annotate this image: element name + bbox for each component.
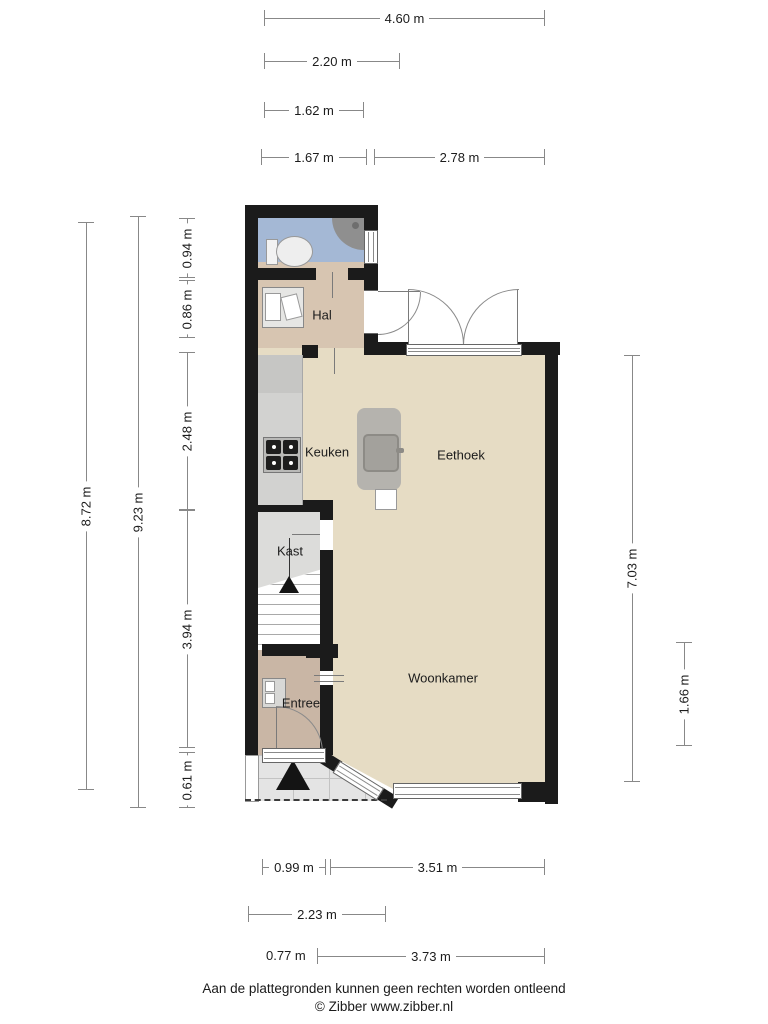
kitchen-counter-upper — [258, 355, 302, 393]
room-label-keuken: Keuken — [305, 445, 349, 460]
floorplan-page: Hal Keuken Eethoek Kast Woonkamer Entree… — [0, 0, 768, 1024]
footer-credit: © Zibber www.zibber.nl — [0, 999, 768, 1014]
dimension-bottom-077: 0.77 m — [266, 948, 306, 963]
room-label-woonkamer: Woonkamer — [408, 671, 478, 686]
hal-keuken-stub — [302, 345, 318, 358]
bathroom-window — [364, 230, 378, 264]
bathroom-door-leaf — [332, 272, 333, 298]
sink-basin — [265, 293, 281, 321]
dimension-right-703: 7.03 m — [624, 355, 640, 782]
hal-backdoor-opening — [364, 290, 378, 334]
stove-burner-dot — [289, 461, 293, 465]
left-wall — [245, 205, 258, 755]
porch-side-strip — [245, 755, 259, 802]
dimension-left-061: 0.61 m — [179, 752, 195, 808]
main-floor-lower — [320, 512, 545, 790]
bath-right-wall-a — [364, 205, 378, 232]
top-wall — [245, 205, 378, 218]
entree-interior-window — [320, 671, 333, 685]
right-wall — [545, 342, 558, 804]
front-door-threshold — [262, 748, 326, 763]
dimension-bottom-351: 3.51 m — [330, 859, 545, 875]
dimension-left-094: 0.94 m — [179, 218, 195, 278]
room-label-hal: Hal — [312, 308, 332, 323]
french-doors-threshold — [406, 344, 522, 356]
eethoek-top-wall-left — [364, 342, 408, 355]
kast-door-leaf — [292, 534, 320, 535]
stove-burner-dot — [272, 461, 276, 465]
island-sink-icon — [363, 434, 399, 472]
dimension-bottom-099: 0.99 m — [262, 859, 326, 875]
dimension-top-167: 1.67 m — [261, 149, 367, 165]
stove-burner — [266, 456, 281, 470]
dimension-top-162: 1.62 m — [264, 102, 364, 118]
dimension-bottom-223: 2.23 m — [248, 906, 386, 922]
porch-boundary-dashed — [245, 799, 387, 801]
dimension-left-923: 9.23 m — [130, 216, 146, 808]
dimension-top-460: 4.60 m — [264, 10, 545, 26]
room-label-eethoek: Eethoek — [437, 448, 485, 463]
bath-hal-divider — [252, 268, 316, 280]
entrance-arrow-icon — [276, 760, 310, 790]
stairs-direction-arrow-icon — [279, 576, 299, 593]
room-label-kast: Kast — [277, 544, 303, 559]
meter-cabinet-detail-1 — [265, 681, 275, 692]
dimension-bottom-373: 3.73 m — [317, 948, 545, 964]
kast-door-opening — [320, 520, 333, 550]
stove-burner — [283, 440, 298, 454]
footer-disclaimer: Aan de plattegronden kunnen geen rechten… — [0, 981, 768, 996]
dimension-top-220: 2.20 m — [264, 53, 400, 69]
island-tap — [396, 448, 404, 453]
stove-burner — [283, 456, 298, 470]
dimension-left-872: 8.72 m — [78, 222, 94, 790]
dimension-left-086: 0.86 m — [179, 280, 195, 338]
entree-interior-window-line-1 — [314, 675, 344, 676]
stove-burner-dot — [272, 445, 276, 449]
chair-icon — [375, 489, 397, 510]
entree-woonkamer-corner — [306, 644, 338, 658]
toilet-bowl — [276, 236, 313, 267]
bottom-wall-right — [518, 782, 558, 802]
stairs-entree-stub — [262, 644, 312, 656]
room-label-entree: Entree — [282, 696, 320, 711]
dimension-left-394: 3.94 m — [179, 510, 195, 748]
bath-right-wall-b — [364, 262, 378, 290]
dimension-top-278: 2.78 m — [374, 149, 545, 165]
meter-cabinet-detail-2 — [265, 693, 275, 704]
hal-keuken-door-leaf — [334, 348, 335, 374]
bath-hal-divider-stub — [348, 268, 364, 280]
entree-interior-window-line-2 — [314, 681, 344, 682]
woonkamer-window — [393, 783, 522, 799]
stove-burner — [266, 440, 281, 454]
french-door-right-arc — [463, 289, 519, 345]
shower-drain — [352, 222, 359, 229]
french-door-left-arc — [408, 289, 464, 345]
dimension-left-248: 2.48 m — [179, 352, 195, 510]
dimension-right-166: 1.66 m — [676, 642, 692, 746]
stove-burner-dot — [289, 445, 293, 449]
stove-icon — [263, 437, 301, 473]
